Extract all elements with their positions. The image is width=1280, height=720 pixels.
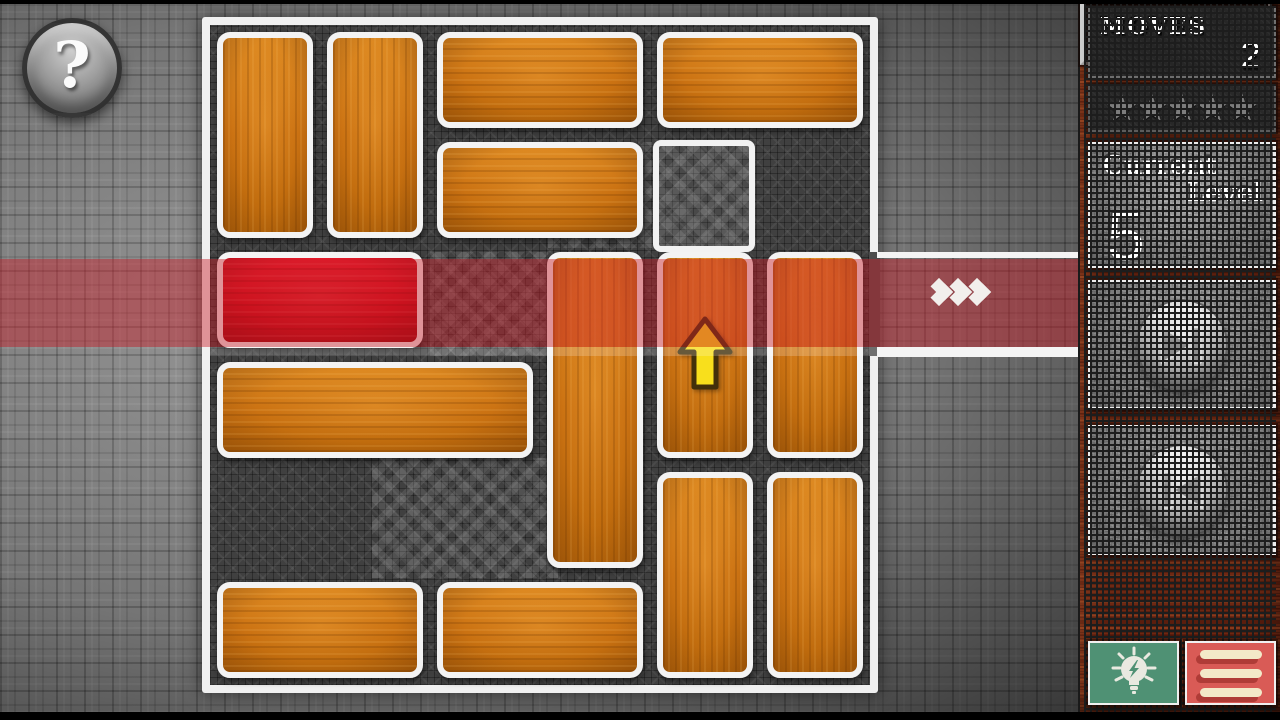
previous-level-button[interactable] <box>1136 444 1228 536</box>
puzzle-block-b11[interactable] <box>657 472 753 678</box>
chevron-right-icon <box>963 278 991 306</box>
puzzle-block-b14[interactable] <box>437 582 643 678</box>
star-icon: ★ <box>1165 88 1199 128</box>
hint-button[interactable] <box>1088 641 1179 705</box>
star-icon: ★ <box>1105 88 1139 128</box>
exit-guide-line-bottom <box>877 347 1078 357</box>
moves-label: MOVES <box>1100 13 1207 40</box>
stars-panel: ★★★★★ <box>1088 84 1276 132</box>
bottom-border-bar <box>0 712 1280 720</box>
skip-next-icon <box>1159 324 1205 366</box>
puzzle-block-b4[interactable] <box>657 32 863 128</box>
previous-level-panel <box>1088 425 1276 555</box>
exit-gap <box>869 252 880 356</box>
next-level-button[interactable] <box>1136 299 1228 391</box>
hamburger-menu-bar <box>1200 650 1262 659</box>
exit-chevrons <box>930 282 987 302</box>
puzzle-block-b1[interactable] <box>217 32 313 238</box>
lightbulb-icon <box>1106 645 1162 701</box>
level-value: 5 <box>1107 203 1145 271</box>
puzzle-block-b9[interactable] <box>767 252 863 458</box>
puzzle-block-b3[interactable] <box>437 32 643 128</box>
menu-button[interactable] <box>1185 641 1276 705</box>
moves-value: 2 <box>1240 37 1261 74</box>
current-level-panel: Current Level 5 <box>1088 142 1276 268</box>
hint-arrow-up-icon <box>676 316 734 390</box>
exit-guide-line-top <box>877 252 1078 258</box>
level-label-line2: Level <box>1187 178 1263 208</box>
sidebar: MOVES 2 ★★★★★ Current Level 5 <box>1078 0 1280 720</box>
game-screen: ? MOVES 2 ★★★★★ Current Level 5 <box>0 0 1280 720</box>
help-button[interactable]: ? <box>22 18 122 118</box>
puzzle-block-b2[interactable] <box>327 32 423 238</box>
puzzle-block-b7[interactable] <box>547 252 643 568</box>
puzzle-block-b5[interactable] <box>437 142 643 238</box>
puzzle-block-b13[interactable] <box>217 582 423 678</box>
hint-outline <box>653 140 755 252</box>
blocks-layer <box>210 25 870 685</box>
question-mark-icon: ? <box>53 34 91 98</box>
skip-previous-icon <box>1159 469 1205 511</box>
top-border-bar <box>0 0 1280 4</box>
next-level-panel <box>1088 280 1276 410</box>
moves-panel: MOVES 2 <box>1088 6 1276 78</box>
star-icon: ★ <box>1195 88 1229 128</box>
play-area: ? <box>0 0 1078 720</box>
puzzle-block-b10[interactable] <box>217 362 533 458</box>
hamburger-menu-bar <box>1200 669 1262 678</box>
hamburger-menu-bar <box>1200 688 1262 697</box>
puzzle-block-b8[interactable] <box>657 252 753 458</box>
puzzle-block-b12[interactable] <box>767 472 863 678</box>
star-icon: ★ <box>1225 88 1259 128</box>
target-block[interactable] <box>217 252 423 348</box>
puzzle-board <box>202 17 878 693</box>
level-label-line1: Current <box>1103 151 1217 181</box>
star-icon: ★ <box>1135 88 1169 128</box>
